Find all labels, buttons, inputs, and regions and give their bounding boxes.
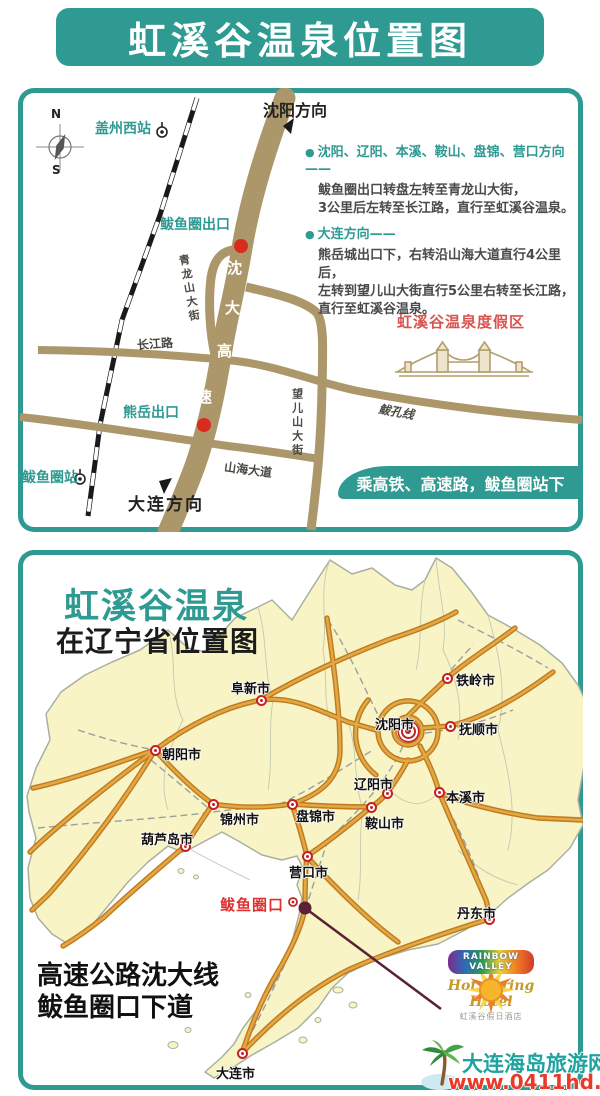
gaizhou-west-station-icon (157, 122, 167, 137)
exit-note-line1: 高速公路沈大线 (37, 960, 219, 992)
shenyang-direction-label: 沈阳方向 (263, 102, 327, 120)
site-watermark: 大连海岛旅游网 www.0411hd.com (420, 1040, 600, 1094)
city-marker (237, 1048, 248, 1059)
driving-directions: 沈阳、辽阳、本溪、鞍山、盘锦、营口方向—— 鲅鱼圈出口转盘左转至青龙山大街， 3… (305, 136, 583, 319)
ride-tip-text: 乘高铁、高速路，鲅鱼圈站下 (356, 471, 564, 495)
xiongyue-exit-label: 熊岳出口 (123, 405, 179, 421)
city-label: 阜新市 (231, 678, 270, 697)
city-label: 锦州市 (220, 809, 259, 828)
poster-page: 虹溪谷温泉位置图 (0, 0, 600, 1096)
city-label: 营口市 (289, 862, 328, 881)
city-label: 辽阳市 (354, 774, 393, 793)
direction-heading-dalian: 大连方向—— (305, 226, 583, 243)
compass-north-label: N (51, 108, 61, 122)
exit-note-line2: 鲅鱼圈口下道 (37, 992, 219, 1024)
dalian-direction-label: 大连方向 (128, 496, 204, 516)
city-marker (442, 673, 453, 684)
province-map-panel: 虹溪谷温泉 在辽宁省位置图 高速公路沈大线 鲅鱼圈口下道 鲅鱼圈口 朝阳市阜新市… (18, 550, 583, 1090)
city-label: 本溪市 (446, 787, 485, 806)
watermark-url: www.0411hd.com (448, 1070, 600, 1094)
page-title-banner: 虹溪谷温泉位置图 (56, 8, 544, 66)
city-marker (366, 802, 377, 813)
bayuquan-exit-dot (234, 239, 248, 253)
changjiang-road-label: 长江路 (137, 337, 174, 353)
city-marker (434, 787, 445, 798)
city-marker (150, 745, 161, 756)
city-label: 盘锦市 (296, 806, 335, 825)
city-label: 丹东市 (457, 903, 496, 922)
direction-line: 直行至虹溪谷温泉。 (305, 301, 583, 319)
logo-name-top: RAINBOW (463, 952, 519, 962)
rainbow-valley-logo: RAINBOW VALLEY Hot Spring Hotel 虹溪谷假日酒店 (426, 964, 556, 1022)
page-title: 虹溪谷温泉位置图 (128, 10, 472, 65)
south-direction-arrow (159, 478, 172, 494)
direction-line: 3公里后左转至长江路，直行至虹溪谷温泉。 (305, 200, 583, 218)
city-label: 抚顺市 (459, 719, 498, 738)
shanhai-avenue-road (20, 417, 320, 459)
expressway-name-char: 速 (197, 389, 212, 406)
city-label: 大连市 (216, 1063, 255, 1082)
province-map-subtitle: 在辽宁省位置图 (56, 620, 259, 660)
wangershan-street-label: 望儿山大街 (290, 388, 303, 458)
expressway-name-char: 沈 (227, 260, 242, 277)
city-label: 铁岭市 (456, 670, 495, 689)
exit-note: 高速公路沈大线 鲅鱼圈口下道 (37, 960, 219, 1024)
expressway-name-char: 大 (225, 300, 240, 317)
direction-line: 熊岳城出口下，右转沿山海大道直行4公里后， (305, 247, 583, 283)
city-label: 鞍山市 (365, 813, 404, 832)
compass-south-label: S (52, 164, 61, 178)
direction-line: 左转到望儿山大街直行5公里右转至长江路， (305, 283, 583, 301)
gaizhou-west-station-label: 盖州西站 (95, 121, 151, 137)
tower-bridge-illustration (395, 342, 533, 376)
bayuquan-exit-highlight-label: 鲅鱼圈口 (220, 894, 284, 915)
city-marker (302, 851, 313, 862)
bayuquan-exit-label: 鲅鱼圈出口 (160, 217, 230, 233)
city-label: 沈阳市 (375, 714, 414, 733)
railway-line (88, 98, 197, 516)
direction-heading-north: 沈阳、辽阳、本溪、鞍山、盘锦、营口方向—— (305, 144, 583, 178)
ride-tip-banner: 乘高铁、高速路，鲅鱼圈站下 (338, 466, 583, 499)
city-label: 葫芦岛市 (141, 829, 193, 848)
city-marker (445, 721, 456, 732)
wangershan-street-road (246, 287, 323, 530)
xiongyue-exit-dot (197, 418, 211, 432)
direction-line: 鲅鱼圈出口转盘左转至青龙山大街， (305, 182, 583, 200)
route-map-panel: 沈阳方向 N S 盖州西站 鲅鱼圈出口 青龙山大街 长江路 熊岳出口 鲅鱼圈站 … (18, 88, 583, 532)
rainbow-band: RAINBOW VALLEY (448, 950, 534, 974)
logo-name-bottom: VALLEY (469, 962, 512, 972)
city-marker (208, 799, 219, 810)
changjiang-road-path (38, 350, 582, 420)
bayuquan-station-label: 鲅鱼圈站 (22, 470, 78, 486)
expressway-name-char: 高 (217, 343, 232, 360)
city-label: 朝阳市 (162, 744, 201, 763)
